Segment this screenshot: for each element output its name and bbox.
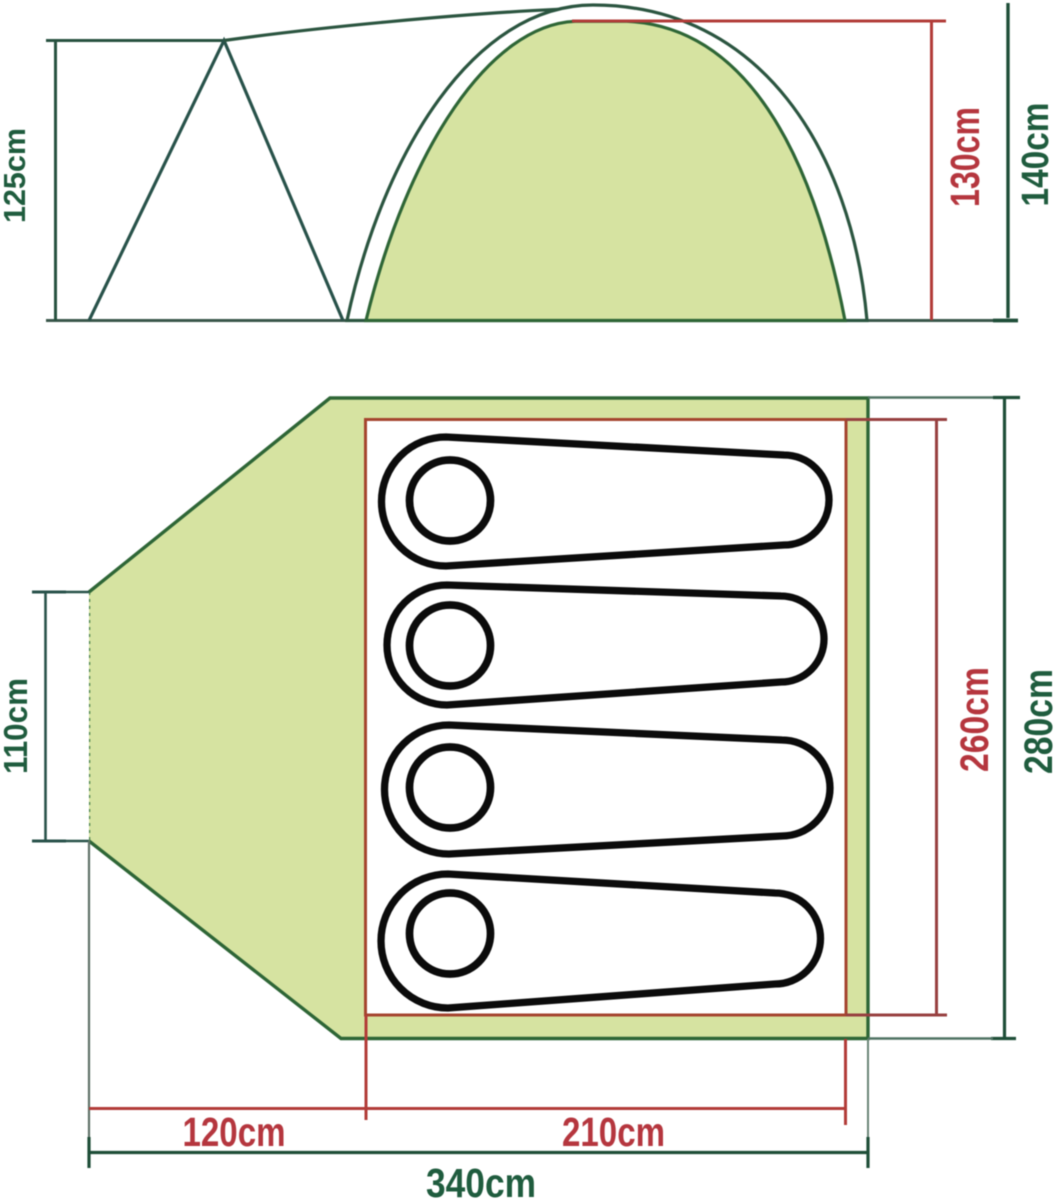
svg-text:130cm: 130cm xyxy=(942,107,988,207)
svg-text:210cm: 210cm xyxy=(562,1109,665,1155)
svg-text:280cm: 280cm xyxy=(1017,669,1056,774)
svg-text:120cm: 120cm xyxy=(183,1109,286,1155)
svg-text:140cm: 140cm xyxy=(1015,103,1056,207)
svg-text:125cm: 125cm xyxy=(0,128,32,223)
svg-text:110cm: 110cm xyxy=(0,678,34,774)
svg-text:260cm: 260cm xyxy=(953,667,997,772)
svg-text:340cm: 340cm xyxy=(426,1160,536,1200)
